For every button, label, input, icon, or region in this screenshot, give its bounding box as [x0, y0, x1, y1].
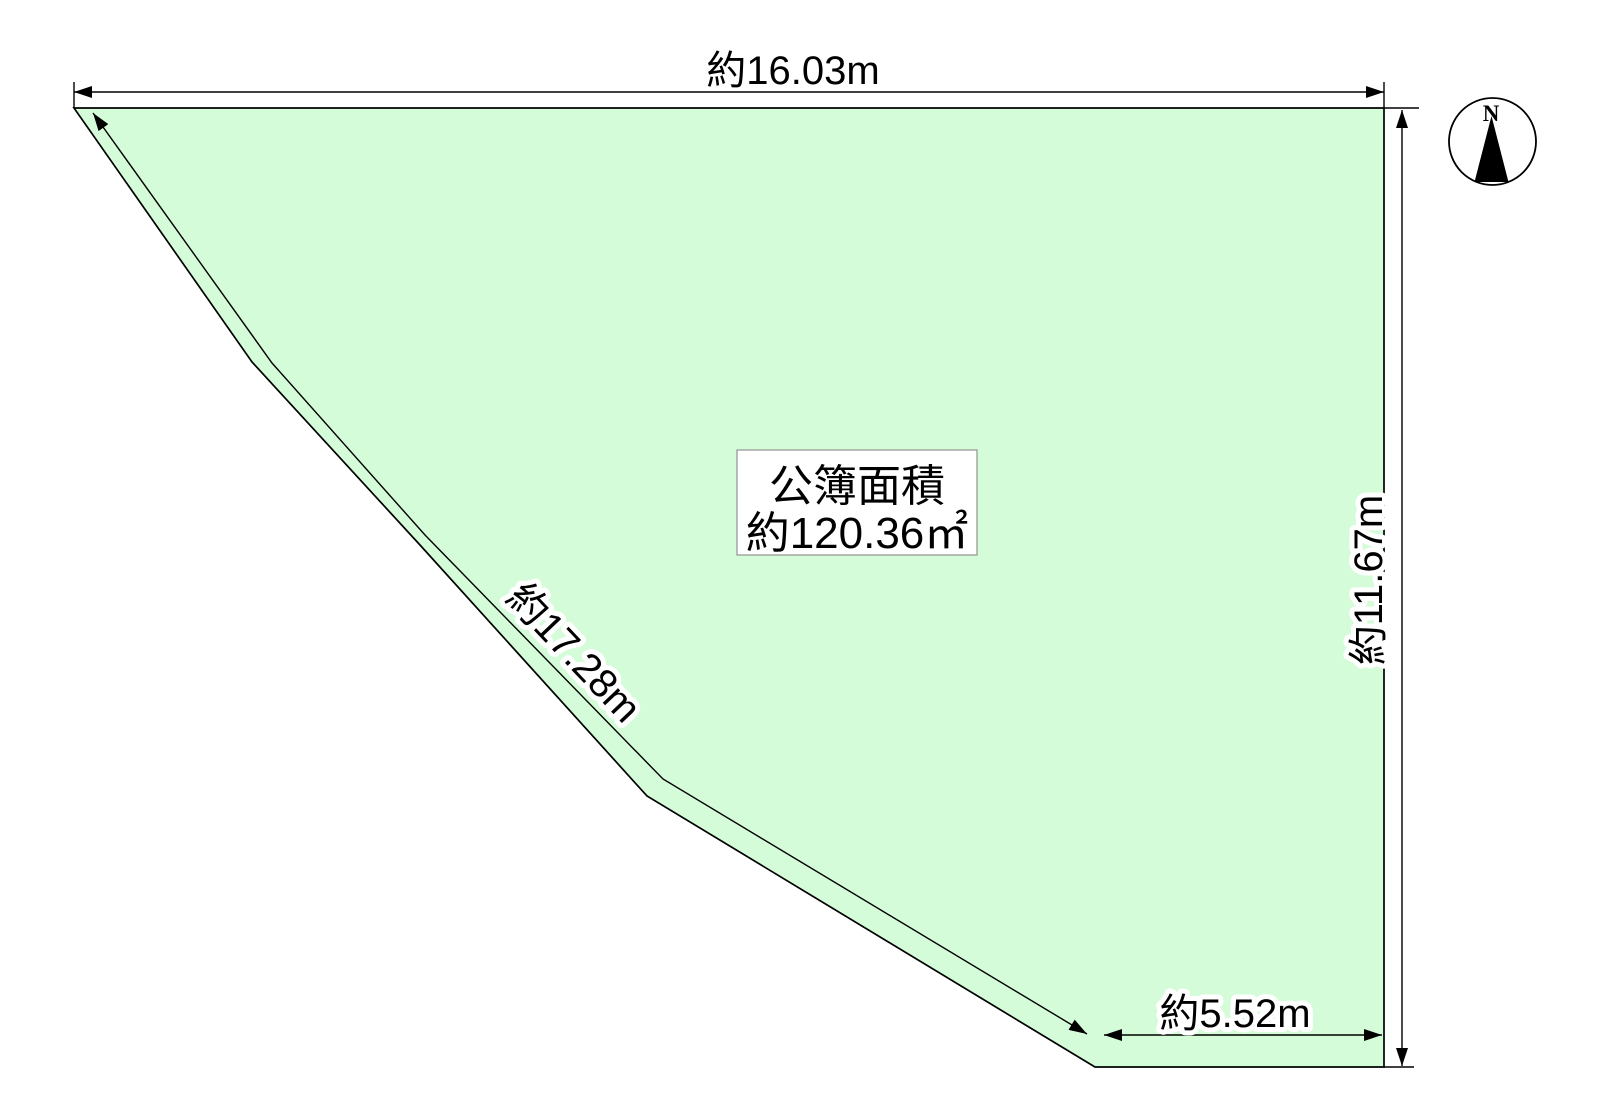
north-compass: N [1449, 98, 1536, 185]
dimension-label-top: 約16.03m [706, 49, 879, 93]
compass-north-label: N [1483, 101, 1500, 126]
area-label-title: 公簿面積 [769, 462, 945, 511]
plot-plan-diagram: 約16.03m 約11.67m 約17.28m 約5.52m 公簿面積 約120… [0, 0, 1606, 1119]
area-label-value: 約120.36㎡ [746, 509, 969, 558]
plot-plan-svg: 約16.03m 約11.67m 約17.28m 約5.52m 公簿面積 約120… [0, 0, 1606, 1119]
dimension-label-bottom: 約5.52m [1159, 992, 1310, 1036]
land-parcel-shape [74, 108, 1384, 1067]
dimension-label-right: 約11.67m [1347, 495, 1391, 665]
